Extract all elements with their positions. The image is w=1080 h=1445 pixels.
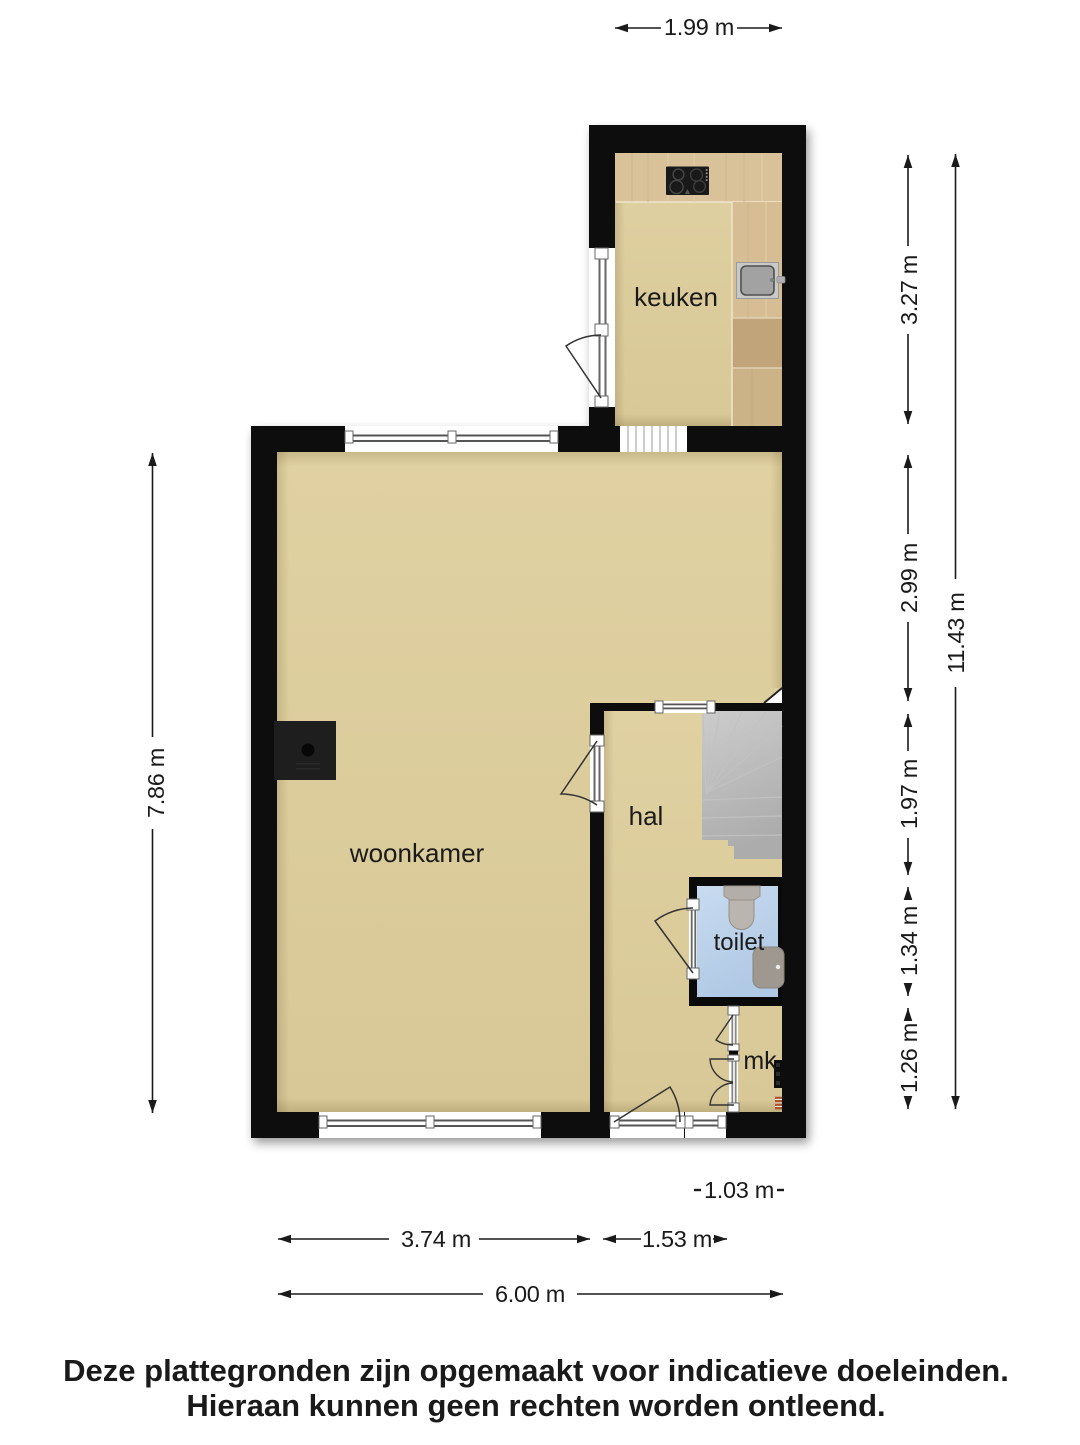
svg-text:11.43 m: 11.43 m [943,592,969,673]
svg-text:3.27 m: 3.27 m [896,255,922,325]
svg-text:1.97 m: 1.97 m [896,759,922,829]
svg-text:6.00 m: 6.00 m [495,1281,565,1307]
svg-text:1.53 m: 1.53 m [642,1226,712,1252]
svg-text:1.03 m: 1.03 m [704,1177,774,1203]
svg-text:keuken: keuken [634,282,718,312]
svg-text:Hieraan kunnen geen rechten wo: Hieraan kunnen geen rechten worden ontle… [186,1388,885,1423]
svg-text:1.34 m: 1.34 m [896,906,922,976]
svg-text:woonkamer: woonkamer [349,838,485,868]
svg-text:hal: hal [629,801,664,831]
svg-text:1.26 m: 1.26 m [896,1023,922,1093]
svg-text:7.86 m: 7.86 m [143,748,169,818]
svg-text:toilet: toilet [714,929,765,956]
svg-text:2.99 m: 2.99 m [896,543,922,613]
svg-text:3.74 m: 3.74 m [401,1226,471,1252]
svg-text:mk: mk [743,1047,777,1075]
svg-text:1.99 m: 1.99 m [664,14,734,40]
svg-text:Deze plattegronden zijn opgema: Deze plattegronden zijn opgemaakt voor i… [63,1353,1009,1388]
